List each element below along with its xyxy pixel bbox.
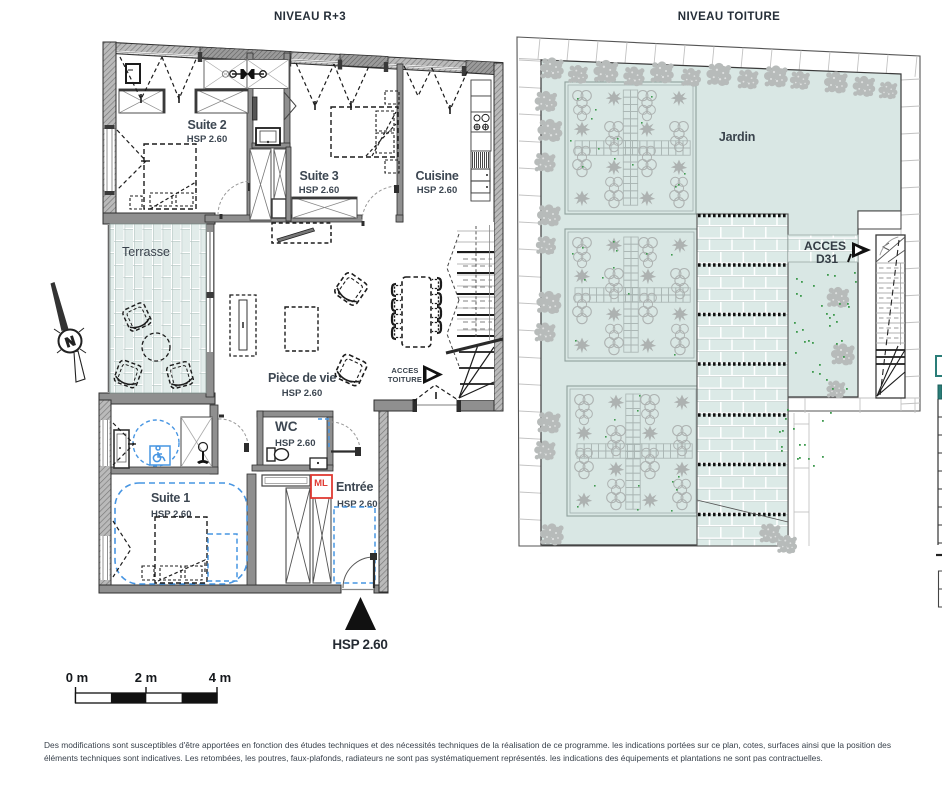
svg-text:HSP 2.60: HSP 2.60 bbox=[282, 388, 323, 399]
svg-text:HSP 2.60: HSP 2.60 bbox=[151, 509, 192, 520]
svg-text:Entrée: Entrée bbox=[336, 480, 373, 494]
svg-text:Cuisine: Cuisine bbox=[415, 169, 458, 183]
svg-text:4 m: 4 m bbox=[209, 670, 231, 685]
svg-text:ACCES: ACCES bbox=[391, 366, 418, 375]
svg-text:Suite 3: Suite 3 bbox=[300, 169, 339, 183]
svg-text:ACCES: ACCES bbox=[804, 239, 846, 253]
svg-text:HSP 2.60: HSP 2.60 bbox=[337, 499, 378, 510]
svg-text:TOITURE: TOITURE bbox=[388, 375, 422, 384]
svg-text:Terrasse: Terrasse bbox=[122, 245, 170, 259]
svg-text:NIVEAU R+3: NIVEAU R+3 bbox=[274, 11, 346, 23]
svg-text:HSP 2.60: HSP 2.60 bbox=[299, 185, 340, 196]
svg-text:NIVEAU TOITURE: NIVEAU TOITURE bbox=[678, 11, 781, 23]
svg-text:Suite 1: Suite 1 bbox=[151, 491, 190, 505]
svg-text:D31: D31 bbox=[816, 252, 838, 266]
svg-text:Jardin: Jardin bbox=[719, 130, 755, 144]
svg-text:Pièce de vie: Pièce de vie bbox=[268, 371, 336, 385]
svg-text:ML: ML bbox=[314, 478, 328, 489]
svg-text:éléments techniques sont indic: éléments techniques sont indicatives. Le… bbox=[44, 753, 823, 763]
svg-text:0 m: 0 m bbox=[66, 670, 88, 685]
svg-text:2 m: 2 m bbox=[135, 670, 157, 685]
svg-text:HSP 2.60: HSP 2.60 bbox=[275, 438, 316, 449]
svg-text:Des modifications sont suscept: Des modifications sont susceptibles d'êt… bbox=[44, 740, 891, 750]
svg-text:HSP 2.60: HSP 2.60 bbox=[332, 637, 387, 652]
svg-text:Suite 2: Suite 2 bbox=[188, 118, 227, 132]
svg-text:HSP 2.60: HSP 2.60 bbox=[417, 185, 458, 196]
svg-text:WC: WC bbox=[275, 419, 298, 434]
